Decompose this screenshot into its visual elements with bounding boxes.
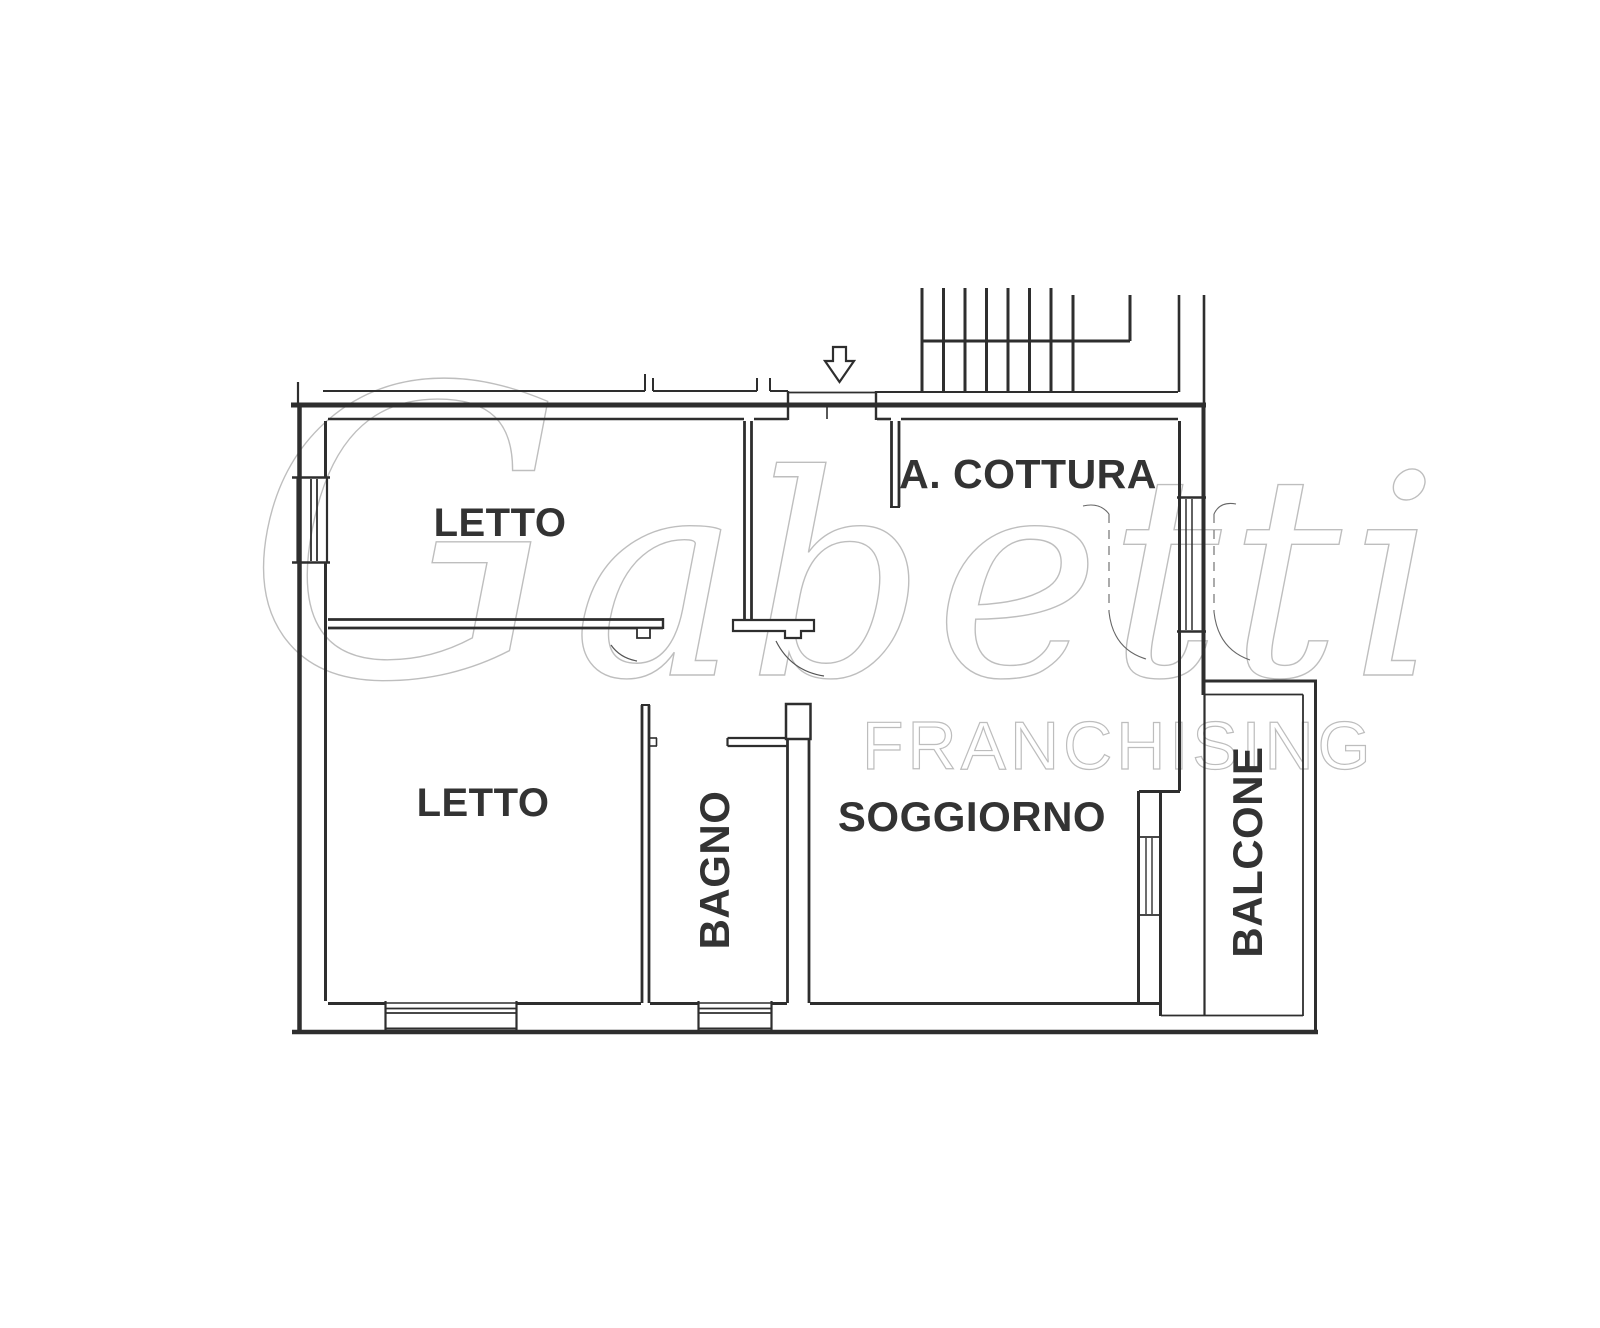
entry-arrow-icon: [825, 347, 854, 382]
watermark-brand: Gabetti: [245, 305, 1447, 770]
room-label-letto-2: LETTO: [417, 781, 550, 825]
watermark-subtitle: FRANCHISING: [862, 708, 1374, 784]
room-label-soggiorno: SOGGIORNO: [838, 793, 1106, 840]
floorplan-canvas: Gabetti FRANCHISING LETTOLETTOBAGNOA. CO…: [0, 0, 1600, 1328]
letto-door-jamb: [637, 628, 650, 638]
bagno-wall-head: [786, 704, 811, 739]
floorplan-svg: Gabetti FRANCHISING LETTOLETTOBAGNOA. CO…: [0, 0, 1600, 1328]
room-label-balcone: BALCONE: [1224, 746, 1271, 957]
room-label-bagno: BAGNO: [691, 791, 738, 950]
room-label-letto-1: LETTO: [434, 501, 567, 545]
room-label-angolo-cottura: A. COTTURA: [899, 451, 1157, 497]
